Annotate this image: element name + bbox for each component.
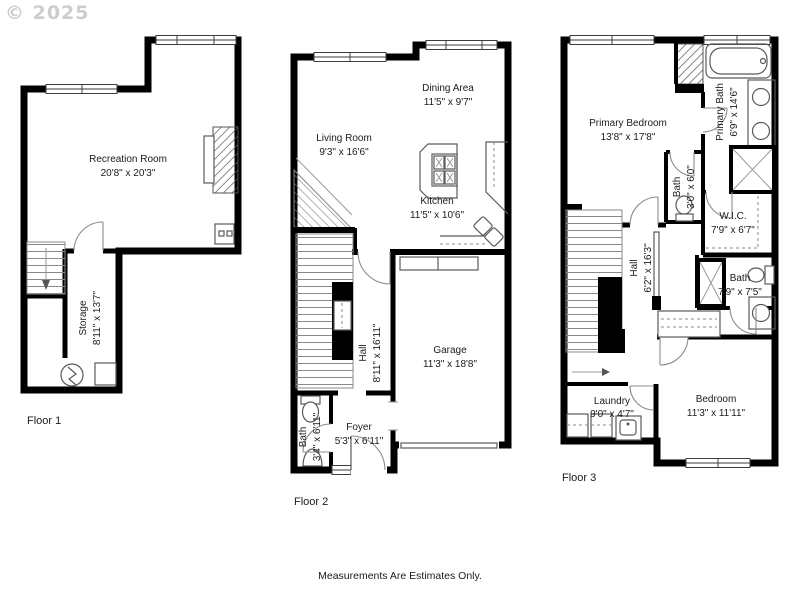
wic-dims: 7'9" x 6'7" xyxy=(711,225,755,236)
hall-post xyxy=(652,296,661,310)
foyer-label: Foyer xyxy=(346,422,372,433)
kitchen-island-icon xyxy=(420,144,457,198)
primary-bedroom-label: Primary Bedroom xyxy=(589,118,667,129)
kitchen-label: Kitchen xyxy=(420,196,453,207)
floor2-stairs-icon xyxy=(296,234,353,388)
floor3-window-bedroom-top xyxy=(570,36,654,45)
living-room-dims: 9'3" x 16'6" xyxy=(319,147,369,158)
floor3-label: Floor 3 xyxy=(562,472,596,484)
floorplan-canvas: © 2025 xyxy=(0,0,800,600)
floor3-stairs-icon xyxy=(566,210,625,376)
primary-bath-dims: 6'9" x 14'6" xyxy=(729,87,740,137)
floor1-window-top-left xyxy=(46,85,117,94)
laundry-dims: 9'0" x 4'7" xyxy=(590,409,634,420)
floor2-window-living xyxy=(314,53,386,62)
recreation-room-dims: 20'8" x 20'3" xyxy=(101,168,156,179)
laundry-label: Laundry xyxy=(594,396,630,407)
fireplace-icon xyxy=(204,127,238,193)
chimney-icon xyxy=(675,44,704,93)
utility-panel-icon xyxy=(215,224,234,244)
primary-bedroom-dims: 13'8" x 17'8" xyxy=(601,132,656,143)
dining-area-dims: 11'5" x 9'7" xyxy=(424,97,473,108)
small-bath-dims: 3'0" x 6'0" xyxy=(686,165,697,209)
floor2-hall-label: Hall xyxy=(358,344,369,361)
storage-dims: 8'11" x 13'7" xyxy=(92,291,103,346)
wic-label: W.I.C. xyxy=(719,211,746,222)
primary-shower-icon xyxy=(731,147,774,192)
floor2-hall-dims: 8'11" x 16'11" xyxy=(372,323,383,382)
water-heater-icon xyxy=(95,363,116,385)
garage-label: Garage xyxy=(433,345,467,356)
disclaimer-text: Measurements Are Estimates Only. xyxy=(318,570,482,582)
storage-label: Storage xyxy=(78,300,89,335)
garage-door xyxy=(399,441,499,450)
bath2-dims: 7'9" x 7'5" xyxy=(718,287,762,298)
floor3-window-bedroom-bottom xyxy=(686,459,750,468)
bedroom-dims: 11'3" x 11'11" xyxy=(687,408,746,419)
floor1-label: Floor 1 xyxy=(27,415,61,427)
floor2-window-dining xyxy=(426,41,497,50)
garage-shelf-icon xyxy=(400,257,478,270)
foyer-window xyxy=(332,466,351,475)
living-room-label: Living Room xyxy=(316,133,372,144)
copyright-watermark: © 2025 xyxy=(5,2,90,24)
furnace-icon xyxy=(61,364,83,386)
floorplan-page: © 2025 xyxy=(0,0,800,600)
floor1-stairs-icon xyxy=(27,242,65,294)
floor3-hall-label: Hall xyxy=(629,259,640,276)
floor3-hall-dims: 6'2" x 16'3" xyxy=(643,243,654,293)
floor3-window-bath-top xyxy=(704,36,770,45)
bedroom-label: Bedroom xyxy=(696,394,737,405)
garage-dims: 11'3" x 18'8" xyxy=(423,359,478,370)
recreation-room-label: Recreation Room xyxy=(89,154,167,165)
washer-icon xyxy=(567,414,588,437)
foyer-dims: 5'3" x 6'11" xyxy=(335,436,384,447)
dining-area-label: Dining Area xyxy=(422,83,474,94)
floor2-bath-label: Bath xyxy=(298,427,309,448)
linen-closet-icon xyxy=(658,311,720,337)
floor1-window-top-right xyxy=(156,36,236,45)
kitchen-dims: 11'5" x 10'6" xyxy=(410,210,465,221)
bath2-label: Bath xyxy=(730,273,751,284)
floor2-bath-dims: 3'4" x 6'11" xyxy=(312,412,323,461)
bath2-shower-icon xyxy=(698,260,724,306)
floor2-label: Floor 2 xyxy=(294,496,328,508)
small-bath-label: Bath xyxy=(672,177,683,198)
primary-bath-label: Primary Bath xyxy=(715,83,726,141)
